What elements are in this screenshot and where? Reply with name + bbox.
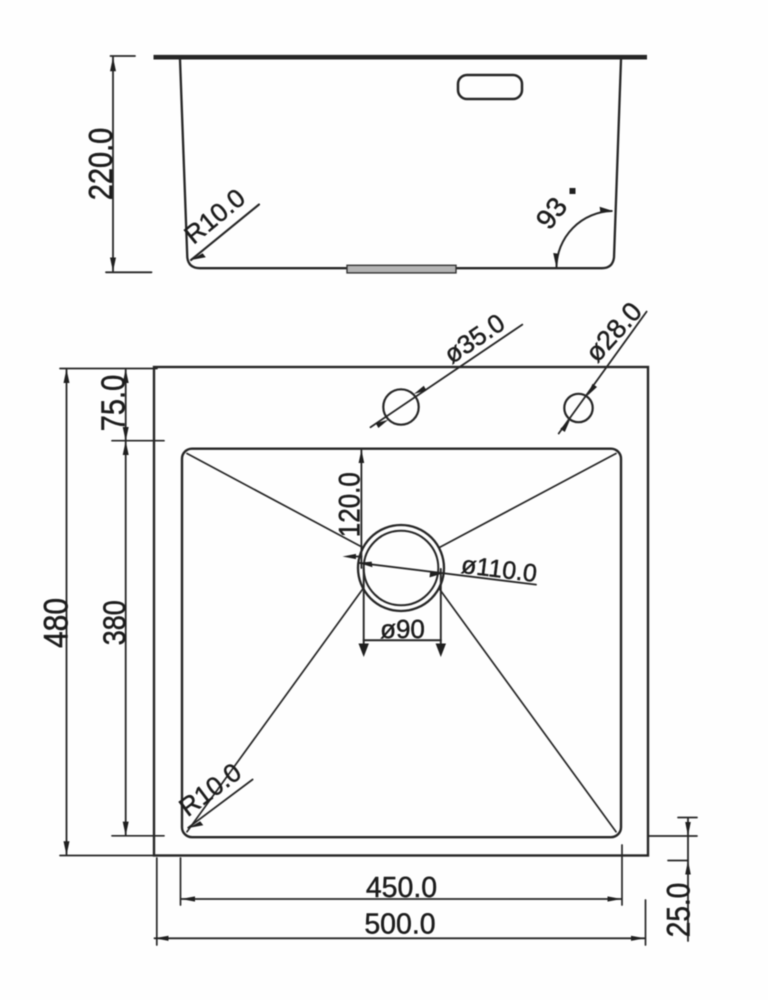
- svg-text:25.0: 25.0: [662, 883, 697, 937]
- svg-text:75.0: 75.0: [95, 375, 132, 431]
- svg-text:450.0: 450.0: [366, 872, 437, 904]
- svg-text:220.0: 220.0: [82, 128, 119, 201]
- svg-text:ø35.0: ø35.0: [438, 307, 510, 369]
- svg-text:480: 480: [37, 598, 75, 648]
- svg-text:93: 93: [530, 191, 574, 235]
- svg-text:ø110.0: ø110.0: [460, 551, 539, 588]
- svg-text:ø90: ø90: [380, 614, 425, 644]
- svg-text:380: 380: [98, 600, 132, 645]
- svg-text:500.0: 500.0: [364, 909, 435, 941]
- svg-text:120.0: 120.0: [333, 472, 366, 537]
